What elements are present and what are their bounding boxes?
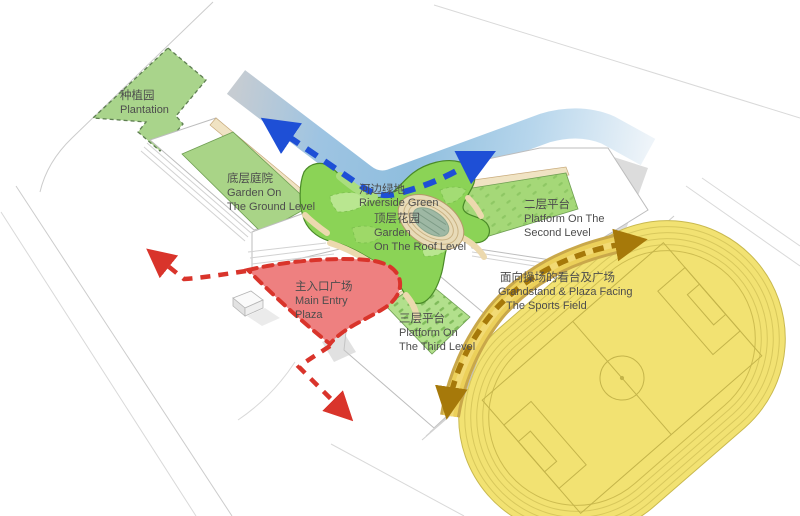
svg-text:Main Entry: Main Entry (295, 295, 348, 307)
svg-text:On The Roof Level: On The Roof Level (374, 241, 466, 253)
plantation-label-en: Plantation (120, 104, 169, 116)
site-plan-canvas: 种植园 Plantation 底层庭院 Garden On The Ground… (0, 0, 800, 516)
site-plan-diagram: 种植园 Plantation 底层庭院 Garden On The Ground… (0, 0, 800, 516)
svg-text:河边绿地: 河边绿地 (359, 182, 405, 196)
svg-text:面向操场的看台及广场: 面向操场的看台及广场 (500, 270, 615, 284)
svg-text:Platform On: Platform On (399, 327, 458, 339)
svg-text:Garden: Garden (374, 227, 411, 239)
svg-text:Garden On: Garden On (227, 187, 281, 199)
plantation-label-zh: 种植园 (120, 88, 155, 102)
svg-text:The Ground Level: The Ground Level (227, 201, 315, 213)
svg-text:三层平台: 三层平台 (399, 311, 445, 325)
svg-text:The Third Level: The Third Level (399, 341, 475, 353)
pedestrian-arrow-west (153, 254, 246, 279)
kiosk-box (233, 291, 280, 326)
svg-text:Platform On The: Platform On The (524, 213, 605, 225)
svg-text:二层平台: 二层平台 (524, 197, 570, 211)
svg-text:顶层花园: 顶层花园 (374, 212, 420, 225)
svg-text:底层庭院: 底层庭院 (227, 171, 273, 185)
svg-text:Riverside Green: Riverside Green (359, 197, 438, 209)
svg-text:The Sports Field: The Sports Field (506, 300, 587, 312)
svg-text:Plaza: Plaza (295, 309, 323, 321)
svg-text:主入口广场: 主入口广场 (295, 279, 353, 293)
svg-text:Second Level: Second Level (524, 227, 591, 239)
svg-text:Grandstand & Plaza Facing: Grandstand & Plaza Facing (498, 286, 633, 298)
